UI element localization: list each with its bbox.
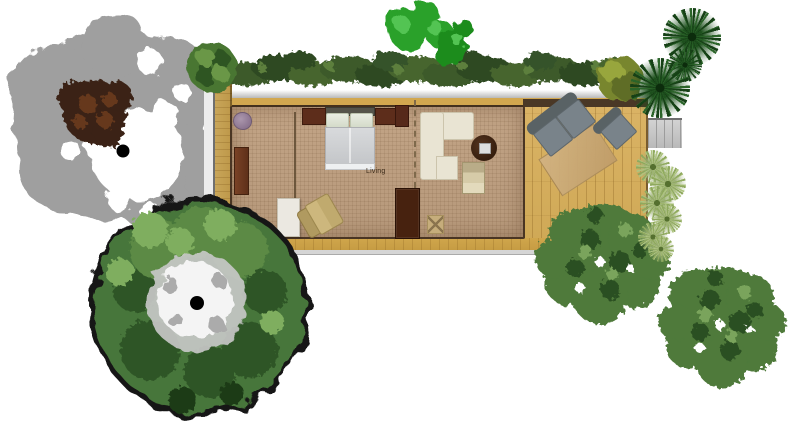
bed-pillow-left	[326, 113, 349, 128]
deck-top-beam	[523, 99, 648, 107]
light-palm-rosette[interactable]	[648, 236, 674, 262]
ceiling-fan-center	[240, 220, 243, 223]
bed-pillow-right	[350, 113, 373, 128]
sliding-partition	[414, 100, 416, 188]
leafy-tree-right[interactable]	[658, 267, 786, 388]
gray-tree-canopy[interactable]	[10, 12, 220, 228]
tree-trunk-dot	[190, 296, 204, 310]
brown-tree-crown	[58, 80, 132, 148]
table-tray	[479, 143, 491, 154]
nightstand-left[interactable]	[302, 108, 326, 125]
bottom-gutter	[232, 250, 648, 254]
entry-steps[interactable]	[648, 118, 682, 148]
sectional-sofa-chaise[interactable]	[436, 156, 458, 180]
ottoman[interactable]	[427, 215, 444, 234]
double-bed[interactable]	[325, 127, 375, 167]
lounge-chair[interactable]	[462, 162, 485, 194]
tree-trunk-dot	[117, 145, 130, 158]
room-label: Living	[366, 168, 386, 175]
hedge-row[interactable]	[222, 51, 640, 87]
purple-pouf[interactable]	[233, 112, 252, 130]
ceiling-fan-symbol	[232, 212, 255, 235]
dark-palm-corner[interactable]	[630, 58, 690, 118]
bright-green-shrubs[interactable]	[384, 1, 474, 67]
floor-plan-scene: Living	[0, 0, 800, 427]
white-side-table[interactable]	[277, 198, 300, 237]
bottom-deck-strip	[232, 238, 648, 250]
wardrobe[interactable]	[395, 188, 420, 239]
roof-gutter	[232, 90, 648, 98]
small-cabinet[interactable]	[395, 105, 409, 127]
wall-desk[interactable]	[234, 147, 249, 195]
